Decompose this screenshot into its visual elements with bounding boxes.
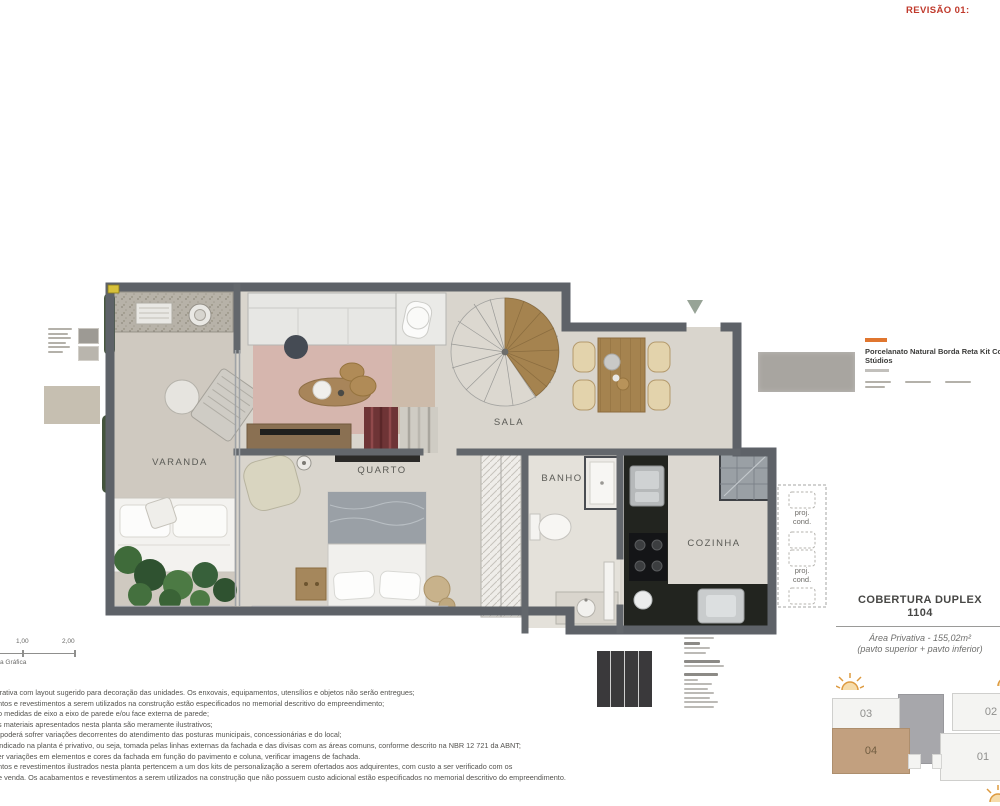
shelf-cabinet [400, 407, 438, 453]
disclaimer-line: ver variações em elementos e cores da fa… [0, 752, 934, 763]
material-sample-small-1 [78, 328, 99, 344]
sofa [248, 293, 398, 345]
proj-cond-label-1a: proj. [795, 508, 810, 517]
proj-cond-strip: proj. cond. proj. cond. [778, 485, 826, 607]
wine-cabinet [364, 407, 398, 453]
material-title-line1: Porcelanato Natural Borda Reta Kit Co [865, 347, 1000, 356]
section-marker [108, 285, 119, 293]
dining-chair [573, 342, 595, 372]
floor-lamp [407, 307, 429, 329]
divider [836, 626, 1000, 627]
banho-door [604, 562, 614, 620]
sun-icon-partial-bottom [984, 784, 1000, 806]
dining-chair [648, 380, 670, 410]
entry-arrow-icon [687, 300, 703, 314]
sun-icon-partial-top [992, 668, 1000, 690]
prep-sink [634, 591, 652, 609]
material-info: Porcelanato Natural Borda Reta Kit Co St… [865, 338, 1000, 390]
disclaimer-line: entos e revestimentos a serem utilizados… [0, 699, 934, 710]
tv-console [247, 424, 351, 450]
toilet [539, 514, 571, 540]
room-label-varanda: VARANDA [152, 457, 208, 468]
unit-info-block: COBERTURA DUPLEX 1104 Área Privativa - 1… [836, 594, 1000, 655]
disclaimer-line: strativa com layout sugerido para decora… [0, 688, 934, 699]
scale-caption: a Gráfica [0, 659, 90, 666]
scale-tick-1: 1,00 [16, 638, 29, 645]
dining-table [598, 338, 645, 412]
room-label-quarto: QUARTO [357, 465, 406, 476]
pillow [379, 571, 421, 601]
nightstand [296, 568, 326, 600]
room-label-banho: BANHO [541, 473, 582, 484]
disclaimer-line: de venda. Os acabamentos e revestimentos… [0, 773, 934, 784]
material-title-line2: Stúdios [865, 356, 1000, 365]
dining-chair [648, 342, 670, 372]
proj-cond-label-2a: proj. [795, 566, 810, 575]
varanda-counter [113, 292, 233, 332]
disclaimer-line: l indicado na planta é privativo, ou sej… [0, 741, 934, 752]
keyplan-unit-02: 02 [952, 693, 1000, 731]
sala-furniture [247, 293, 446, 453]
material-brand-label [865, 338, 887, 342]
pillow [333, 571, 375, 601]
material-sample-beige [44, 386, 100, 424]
disclaimer-text: strativa com layout sugerido para decora… [0, 688, 934, 783]
room-label-cozinha: COZINHA [687, 538, 740, 549]
unit-pavements: (pavto superior + pavto inferior) [836, 644, 1000, 655]
unit-number: 1104 [836, 607, 1000, 620]
disclaimer-line: os materiais apresentados nesta planta s… [0, 720, 934, 731]
disclaimer-line: ão medidas de eixo a eixo de parede e/ou… [0, 709, 934, 720]
closet [481, 455, 521, 617]
disclaimer-line: a poderá sofrer variações decorrentes do… [0, 730, 934, 741]
dining-chair [573, 380, 595, 410]
floor-plan: proj. cond. proj. cond. VARANDA QUARTO S… [100, 278, 840, 648]
service-area-tile [720, 452, 770, 500]
material-sample-small-2 [78, 346, 99, 361]
unit-title: COBERTURA DUPLEX [836, 594, 1000, 607]
room-label-sala: SALA [494, 417, 524, 428]
proj-cond-label-1b: cond. [793, 517, 811, 526]
revision-note: REVISÃO 01: [906, 5, 1000, 16]
material-subtext [865, 369, 889, 372]
pouf [284, 335, 308, 359]
scale-tick-2: 2,00 [62, 638, 75, 645]
material-specs [865, 381, 1000, 390]
spiral-staircase [451, 298, 559, 406]
disclaimer-line: entos e revestimentos ilustrados nesta p… [0, 762, 934, 773]
keyplan-unit-01: 01 [940, 733, 1000, 781]
cooktop [629, 533, 667, 581]
porcelanato-swatch [758, 352, 855, 392]
unit-area: Área Privativa - 155,02m² [836, 633, 1000, 644]
scale-bar: 1,00 2,00 a Gráfica [0, 638, 90, 666]
proj-cond-label-2b: cond. [793, 575, 811, 584]
left-sample-caption [48, 328, 74, 355]
